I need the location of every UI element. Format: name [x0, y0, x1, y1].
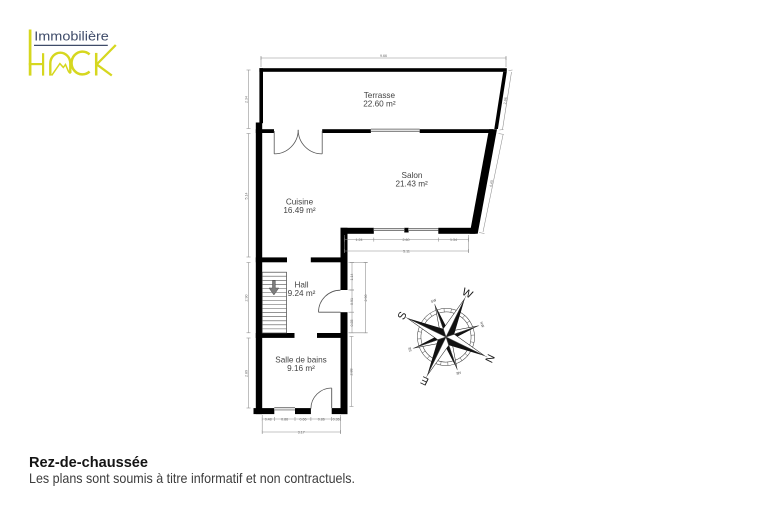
svg-text:2.86: 2.86 [503, 97, 508, 105]
svg-text:0.86: 0.86 [281, 417, 288, 421]
svg-text:2.88: 2.88 [350, 369, 354, 376]
svg-text:0.86: 0.86 [318, 417, 325, 421]
svg-text:9.24 m²: 9.24 m² [288, 289, 316, 298]
svg-text:3.17: 3.17 [298, 430, 305, 434]
svg-text:E: E [419, 373, 431, 387]
svg-text:SE: SE [407, 346, 413, 352]
svg-text:0.91: 0.91 [350, 298, 354, 305]
svg-text:2.60: 2.60 [403, 238, 410, 242]
svg-text:5.14: 5.14 [244, 193, 248, 200]
svg-text:Rez-de-chaussée: Rez-de-chaussée [29, 454, 148, 471]
svg-text:9.66: 9.66 [380, 54, 387, 58]
svg-text:21.43 m²: 21.43 m² [395, 179, 428, 188]
svg-text:SW: SW [430, 298, 437, 304]
svg-text:22.60 m²: 22.60 m² [363, 100, 396, 109]
svg-text:1.34: 1.34 [450, 238, 457, 242]
svg-text:NE: NE [455, 370, 462, 376]
svg-text:S: S [396, 310, 410, 322]
svg-text:W: W [460, 286, 475, 302]
svg-text:N: N [482, 352, 496, 364]
svg-text:9.16 m²: 9.16 m² [287, 364, 315, 373]
svg-text:4.40: 4.40 [489, 180, 494, 188]
svg-text:1.14: 1.14 [350, 274, 354, 281]
svg-text:0.48: 0.48 [265, 417, 272, 421]
svg-text:Immobilière: Immobilière [34, 28, 109, 43]
svg-text:2.34: 2.34 [244, 96, 248, 103]
svg-text:2.90: 2.90 [364, 295, 368, 302]
svg-text:16.49 m²: 16.49 m² [283, 206, 316, 215]
svg-text:0.66: 0.66 [300, 417, 307, 421]
svg-text:2.90: 2.90 [244, 295, 248, 302]
svg-text:NW: NW [479, 321, 485, 329]
svg-text:2.89: 2.89 [244, 370, 248, 377]
svg-text:0.36: 0.36 [333, 417, 340, 421]
svg-text:Les plans sont soumis à titre: Les plans sont soumis à titre informatif… [29, 471, 355, 486]
svg-text:1.24: 1.24 [356, 238, 363, 242]
svg-text:0.85: 0.85 [350, 320, 354, 327]
svg-text:5.11: 5.11 [403, 249, 410, 253]
